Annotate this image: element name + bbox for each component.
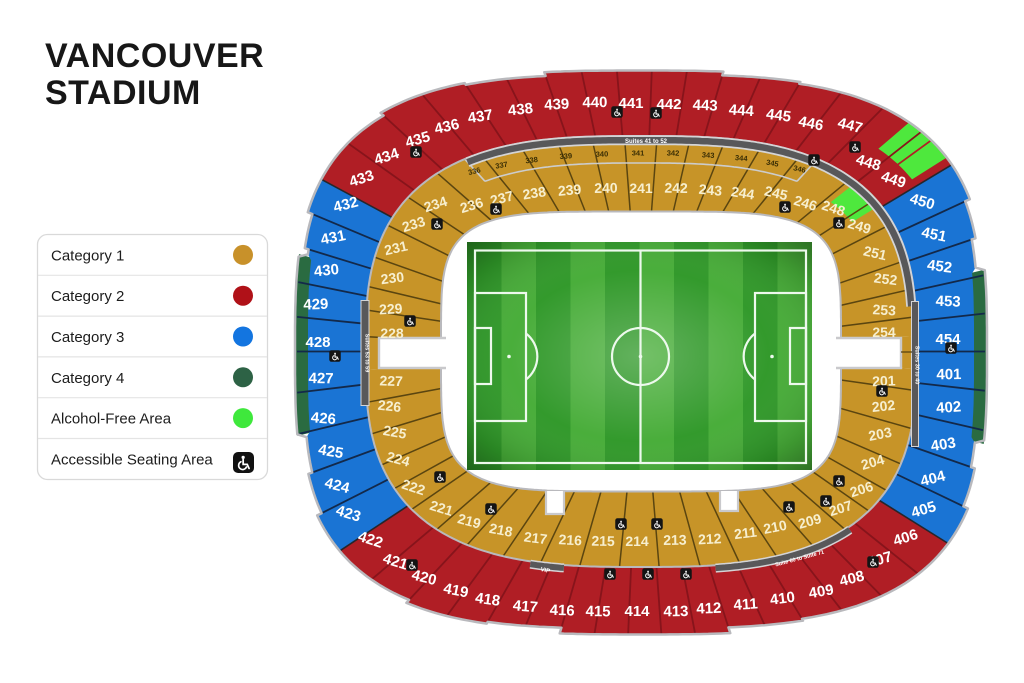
svg-text:Accessible Seating Area: Accessible Seating Area <box>51 451 213 468</box>
svg-text:443: 443 <box>692 97 718 115</box>
svg-text:417: 417 <box>512 597 538 616</box>
svg-text:Suites 41 to 52: Suites 41 to 52 <box>625 139 668 145</box>
svg-text:410: 410 <box>769 589 796 609</box>
svg-text:439: 439 <box>544 96 570 114</box>
svg-text:342: 342 <box>667 148 680 157</box>
svg-text:226: 226 <box>377 397 402 415</box>
svg-text:411: 411 <box>733 595 758 614</box>
svg-text:241: 241 <box>629 180 653 196</box>
svg-text:Category 1: Category 1 <box>51 247 124 264</box>
svg-text:252: 252 <box>873 269 898 288</box>
svg-text:Alcohol-Free Area: Alcohol-Free Area <box>51 411 172 428</box>
svg-text:452: 452 <box>926 257 953 277</box>
svg-text:Suites 53 to 59: Suites 53 to 59 <box>364 334 370 373</box>
svg-text:401: 401 <box>936 366 961 383</box>
svg-text:214: 214 <box>625 533 649 549</box>
svg-text:243: 243 <box>698 181 723 199</box>
svg-text:426: 426 <box>310 409 336 428</box>
svg-text:444: 444 <box>728 101 755 120</box>
svg-text:211: 211 <box>733 523 758 542</box>
svg-text:413: 413 <box>663 603 688 620</box>
svg-text:254: 254 <box>872 324 896 340</box>
svg-text:343: 343 <box>702 150 715 160</box>
svg-text:445: 445 <box>765 106 792 126</box>
svg-text:227: 227 <box>379 372 403 389</box>
svg-text:414: 414 <box>624 603 650 620</box>
svg-text:340: 340 <box>596 149 609 158</box>
svg-text:438: 438 <box>507 100 534 120</box>
svg-text:STADIUM: STADIUM <box>45 74 201 112</box>
svg-text:240: 240 <box>594 180 618 196</box>
svg-text:429: 429 <box>303 296 329 314</box>
svg-text:216: 216 <box>558 531 582 548</box>
svg-text:428: 428 <box>305 334 330 351</box>
svg-text:Suites 30 to 40: Suites 30 to 40 <box>914 346 920 385</box>
svg-text:338: 338 <box>525 155 539 165</box>
svg-text:230: 230 <box>380 268 405 287</box>
svg-text:402: 402 <box>936 398 962 417</box>
svg-text:416: 416 <box>549 602 575 620</box>
svg-text:Category 4: Category 4 <box>51 370 124 387</box>
svg-text:Category 2: Category 2 <box>51 288 124 305</box>
svg-text:339: 339 <box>559 151 572 161</box>
svg-text:415: 415 <box>585 603 610 620</box>
svg-text:412: 412 <box>696 600 722 618</box>
svg-text:229: 229 <box>379 300 403 317</box>
svg-text:344: 344 <box>735 153 749 163</box>
svg-text:202: 202 <box>871 397 896 415</box>
svg-text:215: 215 <box>591 533 615 549</box>
svg-text:242: 242 <box>664 180 688 196</box>
svg-text:228: 228 <box>380 325 404 341</box>
svg-text:239: 239 <box>557 181 582 199</box>
svg-text:418: 418 <box>474 590 501 610</box>
svg-text:440: 440 <box>582 94 607 111</box>
svg-text:430: 430 <box>313 261 340 281</box>
svg-text:VANCOUVER: VANCOUVER <box>45 37 264 75</box>
svg-text:212: 212 <box>698 530 722 547</box>
svg-text:217: 217 <box>523 528 548 547</box>
svg-text:453: 453 <box>935 293 961 311</box>
svg-text:213: 213 <box>663 532 687 548</box>
svg-text:Category 3: Category 3 <box>51 329 124 346</box>
svg-text:253: 253 <box>872 301 896 318</box>
svg-text:427: 427 <box>308 370 333 387</box>
svg-text:341: 341 <box>632 149 645 158</box>
